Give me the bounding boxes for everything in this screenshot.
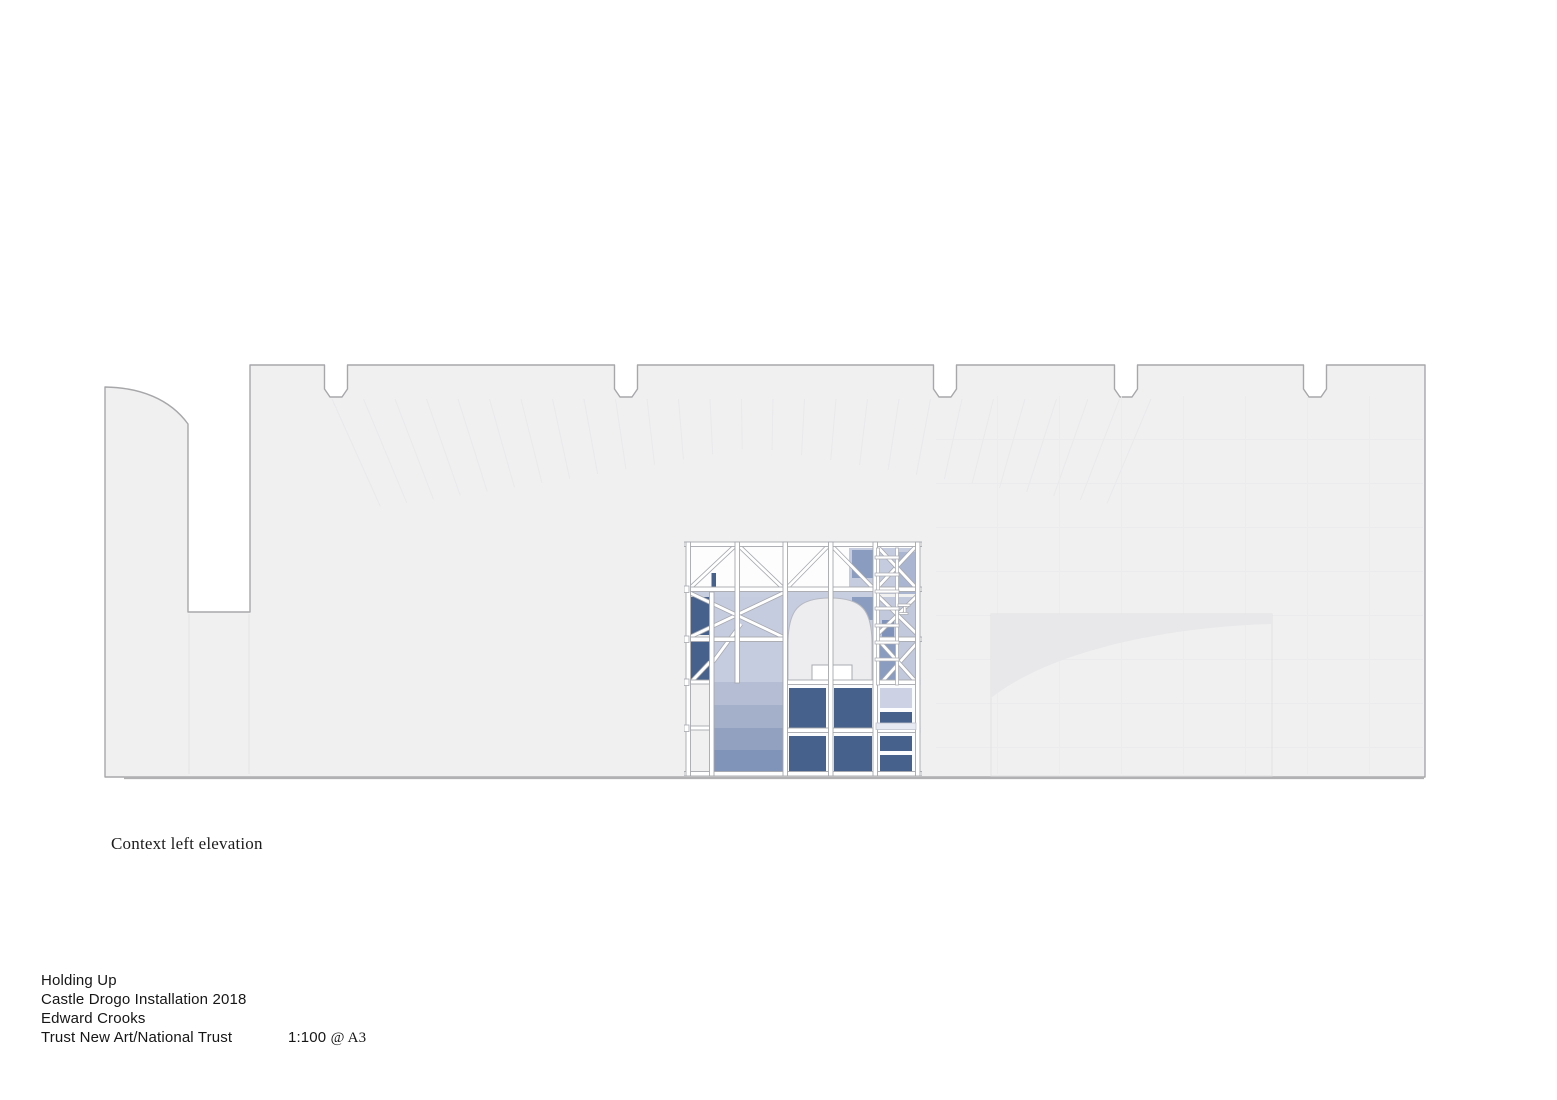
scale-note: 1:100 @ A3 — [288, 1029, 366, 1047]
scale-value: 1:100 — [288, 1029, 326, 1046]
view-label: Context left elevation — [111, 834, 263, 854]
project-title: Holding Up — [41, 971, 246, 990]
author: Edward Crooks — [41, 1009, 246, 1028]
installation-scaffold — [684, 540, 922, 776]
title-block: Holding Up Castle Drogo Installation 201… — [41, 971, 246, 1047]
paper-size: @ A3 — [331, 1030, 367, 1046]
client: Trust New Art/National Trust — [41, 1028, 246, 1047]
project-subtitle: Castle Drogo Installation 2018 — [41, 990, 246, 1009]
